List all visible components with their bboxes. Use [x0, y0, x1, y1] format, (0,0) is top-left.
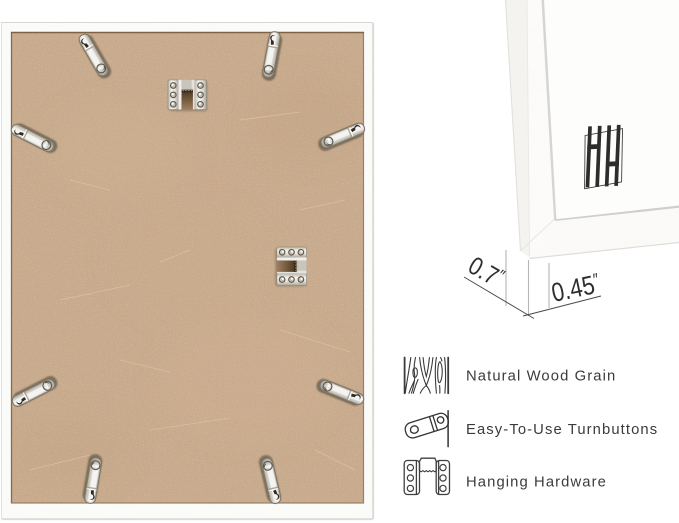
svg-text:Hanging Hardware: Hanging Hardware — [466, 474, 607, 490]
svg-text:Easy-To-Use Turnbuttons: Easy-To-Use Turnbuttons — [466, 422, 658, 438]
svg-text:0.7″: 0.7″ — [464, 251, 509, 293]
svg-text:Natural Wood Grain: Natural Wood Grain — [466, 369, 616, 385]
svg-text:0.45″: 0.45″ — [549, 270, 603, 309]
